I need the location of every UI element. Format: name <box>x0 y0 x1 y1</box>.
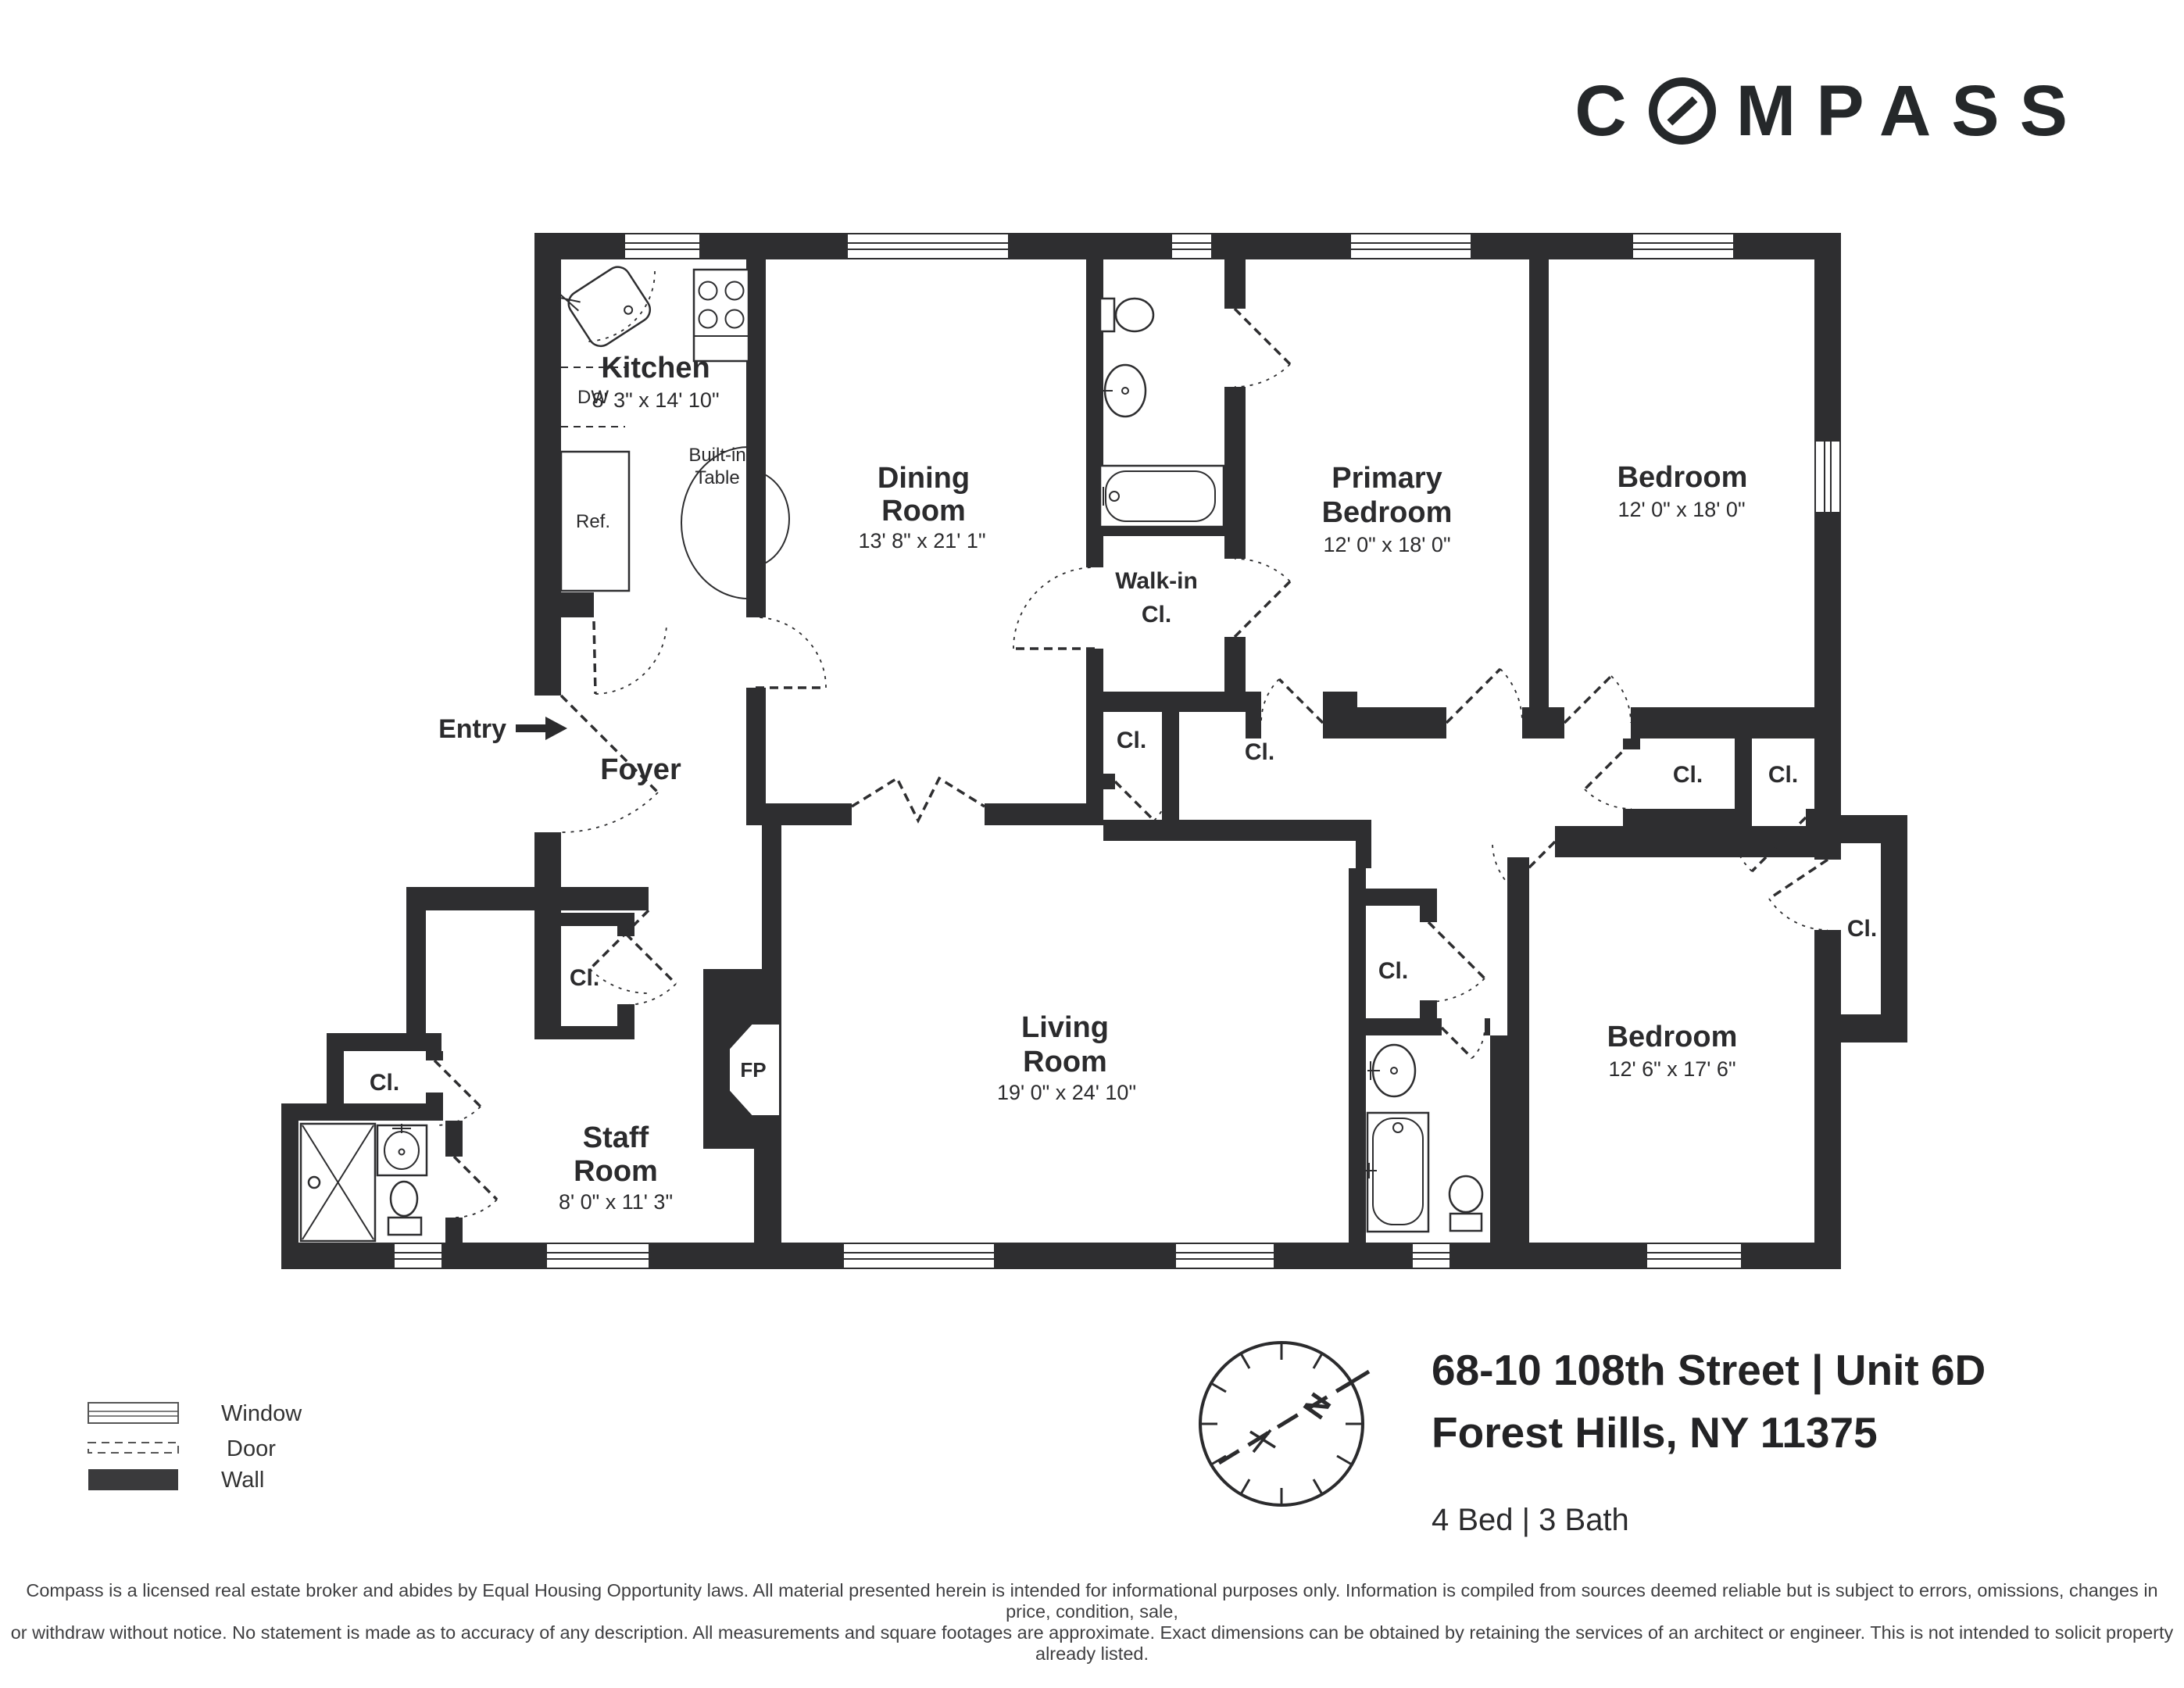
dining-label-1: Dining <box>878 462 970 495</box>
bedroom2-dims: 12' 0" x 18' 0" <box>1617 498 1745 521</box>
primary-bedroom-dims: 12' 0" x 18' 0" <box>1323 533 1450 556</box>
dining-label-2: Room <box>881 495 966 527</box>
legend-window-label: Window <box>221 1401 302 1426</box>
kitchen-label: Kitchen <box>601 352 710 384</box>
walls-layer <box>281 233 1907 1269</box>
bedroom2-label: Bedroom <box>1617 461 1748 494</box>
dining-dims: 13' 8" x 21' 1" <box>858 529 985 553</box>
disclaimer-line-1: Compass is a licensed real estate broker… <box>8 1580 2176 1622</box>
living-room-label-1: Living <box>1021 1011 1109 1044</box>
bath-closet-label: Cl. <box>1378 958 1408 984</box>
staff-room-label-1: Staff <box>583 1121 649 1154</box>
kitchen-sink-icon <box>547 248 655 356</box>
toilet-icon <box>1449 1176 1482 1231</box>
address-block: 68-10 108th Street | Unit 6D Forest Hill… <box>1432 1346 1986 1537</box>
bathtub-icon <box>1361 1113 1428 1232</box>
walkin-label-1: Walk-in <box>1115 568 1198 594</box>
primary-bedroom-label-1: Primary <box>1331 462 1442 495</box>
legend-wall-swatch <box>88 1469 178 1490</box>
sink-icon <box>377 1124 427 1175</box>
floorplan-page: CMPASS <box>0 0 2184 1688</box>
address-line-2: Forest Hills, NY 11375 <box>1432 1408 1878 1457</box>
legend-door-swatch <box>88 1443 178 1453</box>
builtin-table-label-1: Built-in <box>688 445 745 466</box>
closet-b-label: Cl. <box>1768 762 1798 788</box>
walkin-label-2: Cl. <box>1142 602 1171 628</box>
entry-arrow-icon: Entry <box>438 714 567 744</box>
bathtub-icon <box>1100 466 1224 527</box>
entry-label: Entry <box>438 714 506 744</box>
legend: Window Door Wall <box>88 1401 302 1493</box>
sink-icon <box>1367 1045 1415 1096</box>
staff-room-label-2: Room <box>574 1155 658 1188</box>
closet-a-label: Cl. <box>1673 762 1703 788</box>
disclaimer: Compass is a licensed real estate broker… <box>8 1580 2176 1665</box>
hall-closet-wide-label: Cl. <box>1245 739 1274 765</box>
shower-icon <box>301 1124 375 1241</box>
beds-baths-label: 4 Bed | 3 Bath <box>1432 1503 1629 1537</box>
foyer-closet-label: Cl. <box>570 965 599 991</box>
bedroom3-label: Bedroom <box>1607 1021 1738 1053</box>
bedroom3-dims: 12' 6" x 17' 6" <box>1608 1057 1735 1081</box>
legend-window-swatch <box>88 1403 178 1423</box>
foyer-label: Foyer <box>600 753 681 786</box>
builtin-table-label-2: Table <box>695 467 739 488</box>
staff-closet-label: Cl. <box>370 1070 399 1096</box>
refrigerator-label: Ref. <box>576 511 610 532</box>
living-room-dims: 19' 0" x 24' 10" <box>997 1081 1136 1104</box>
floor-plan: Kitchen 8' 3" x 14' 10" DW Ref. Built-in… <box>0 0 2184 1688</box>
living-room-label-2: Room <box>1023 1046 1107 1078</box>
toilet-icon <box>388 1182 421 1235</box>
compass-north-label: N <box>1297 1387 1339 1425</box>
toilet-icon <box>1100 299 1153 331</box>
bumpout-closet-label: Cl. <box>1847 916 1877 942</box>
kitchen-dims: 8' 3" x 14' 10" <box>592 388 719 412</box>
compass-rose-icon: N <box>1200 1343 1369 1505</box>
legend-door-label: Door <box>227 1436 276 1461</box>
legend-wall-label: Wall <box>221 1468 264 1493</box>
address-line-1: 68-10 108th Street | Unit 6D <box>1432 1346 1986 1395</box>
primary-bedroom-label-2: Bedroom <box>1322 496 1453 529</box>
sink-icon <box>1099 365 1146 417</box>
fixtures-layer <box>301 248 1482 1241</box>
hall-closet-small-label: Cl. <box>1117 728 1146 753</box>
disclaimer-line-2: or withdraw without notice. No statement… <box>8 1622 2176 1665</box>
dishwasher-label: DW <box>577 387 609 408</box>
fireplace-label: FP <box>740 1058 766 1082</box>
staff-room-dims: 8' 0" x 11' 3" <box>559 1190 673 1214</box>
stove-icon <box>694 270 749 361</box>
